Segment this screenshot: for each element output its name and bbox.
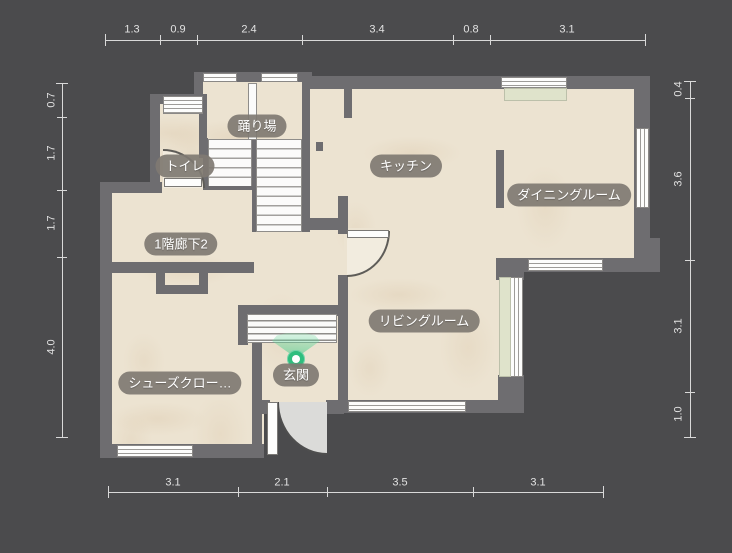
wall-kitchen-stub [344,88,352,118]
room-label-odoriba[interactable]: 踊り場 [227,115,286,138]
dim-bottom-0: 3.1 [165,478,180,489]
window-landing-2[interactable] [261,73,298,82]
dim-top-4: 0.8 [463,25,478,36]
floorplan-canvas: 踊り場 トイレ キッチン ダイニングルーム 1階廊下2 リビングルーム シューズ… [0,0,732,553]
dimension-line-left [62,83,63,437]
dim-left-3: 4.0 [47,339,58,354]
window-living-bottom[interactable] [348,401,466,412]
wall-kitchen-column [316,142,323,151]
dim-right-0: 0.4 [674,81,685,96]
wall-hall-kitchen [306,218,342,230]
wall-top-main [304,76,650,89]
wall-living-corner-br [498,375,524,413]
dim-bottom-2: 3.5 [392,478,407,489]
door-hall-living-leaf [347,230,389,238]
wall-toilet-left [150,102,160,190]
wall-stairs-right [302,80,310,232]
door-front-leaf [267,402,278,455]
room-label-hallway[interactable]: 1階廊下2 [144,233,217,256]
wall-exterior-left [100,182,112,458]
stairs-main-flight[interactable] [256,139,302,232]
door-front-entrance[interactable] [277,402,327,455]
room-label-shoes-closet[interactable]: シューズクロー… [118,372,241,395]
dim-top-3: 3.4 [369,25,384,36]
wall-notch-right [199,271,208,293]
dim-top-1: 0.9 [170,25,185,36]
room-label-genkan[interactable]: 玄関 [273,364,319,387]
wall-hall-shoes-divider [112,262,254,273]
floor-shoes-closet [108,400,264,450]
window-toilet[interactable] [163,96,203,114]
room-label-kitchen[interactable]: キッチン [370,155,442,178]
wall-hall-living-lower [338,275,348,405]
dim-top-0: 1.3 [124,25,139,36]
room-label-toilet[interactable]: トイレ [155,155,214,178]
dim-left-2: 1.7 [47,215,58,230]
dimension-line-right [690,81,691,437]
window-landing-1[interactable] [203,73,237,82]
window-living-right[interactable] [510,277,523,377]
dimension-line-bottom [108,492,603,493]
dim-top-5: 3.1 [559,25,574,36]
room-label-living[interactable]: リビングルーム [369,310,480,333]
dim-left-0: 0.7 [47,92,58,107]
window-dining-top[interactable] [501,77,567,88]
dim-bottom-3: 3.1 [530,478,545,489]
dim-top-2: 2.4 [241,25,256,36]
counter-living-right [499,277,511,377]
window-shoes-bottom[interactable] [117,445,193,457]
window-dining-right[interactable] [636,128,649,208]
wall-stairs-bottom-lip [203,186,256,190]
wall-kitchen-dining-stub [496,150,504,208]
counter-dining-top [504,88,567,101]
window-dining-bottom[interactable] [528,259,603,271]
stairs-upper-flight[interactable] [208,139,252,188]
door-toilet-leaf [164,178,202,187]
dim-left-1: 1.7 [47,145,58,160]
wall-shoes-entrance-divider [252,338,262,450]
dimension-line-top [105,40,645,41]
dim-right-3: 1.0 [674,406,685,421]
wall-stairs-divider [252,138,256,232]
dim-right-2: 3.1 [674,318,685,333]
dim-bottom-1: 2.1 [274,478,289,489]
room-label-dining[interactable]: ダイニングルーム [507,184,631,207]
dim-right-1: 3.6 [674,171,685,186]
